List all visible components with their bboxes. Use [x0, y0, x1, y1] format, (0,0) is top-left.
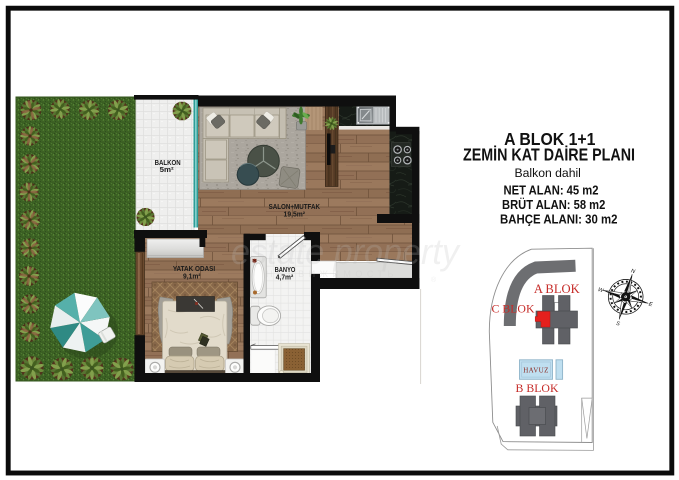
svg-text:ZEMİN KAT DAİRE PLANI: ZEMİN KAT DAİRE PLANI — [463, 145, 635, 165]
svg-text:A BLOK: A BLOK — [534, 282, 580, 296]
svg-text:4,7m²: 4,7m² — [276, 272, 294, 281]
svg-text:C BLOK: C BLOK — [492, 302, 535, 316]
svg-text:Balkon dahil: Balkon dahil — [514, 166, 580, 180]
svg-text:9,1m²: 9,1m² — [183, 271, 201, 280]
svg-text:5m²: 5m² — [160, 165, 175, 174]
svg-text:HAVUZ: HAVUZ — [523, 366, 549, 374]
svg-text:BRÜT ALAN: 58 m2: BRÜT ALAN: 58 m2 — [502, 197, 605, 212]
svg-text:B BLOK: B BLOK — [516, 381, 559, 395]
svg-text:19,5m²: 19,5m² — [284, 210, 306, 219]
svg-text:estate property: estate property — [231, 231, 461, 272]
svg-text:NET ALAN: 45 m2: NET ALAN: 45 m2 — [504, 183, 599, 198]
svg-text:BAHÇE ALANI: 30 m2: BAHÇE ALANI: 30 m2 — [500, 212, 618, 227]
svg-text:®: ® — [431, 276, 437, 284]
